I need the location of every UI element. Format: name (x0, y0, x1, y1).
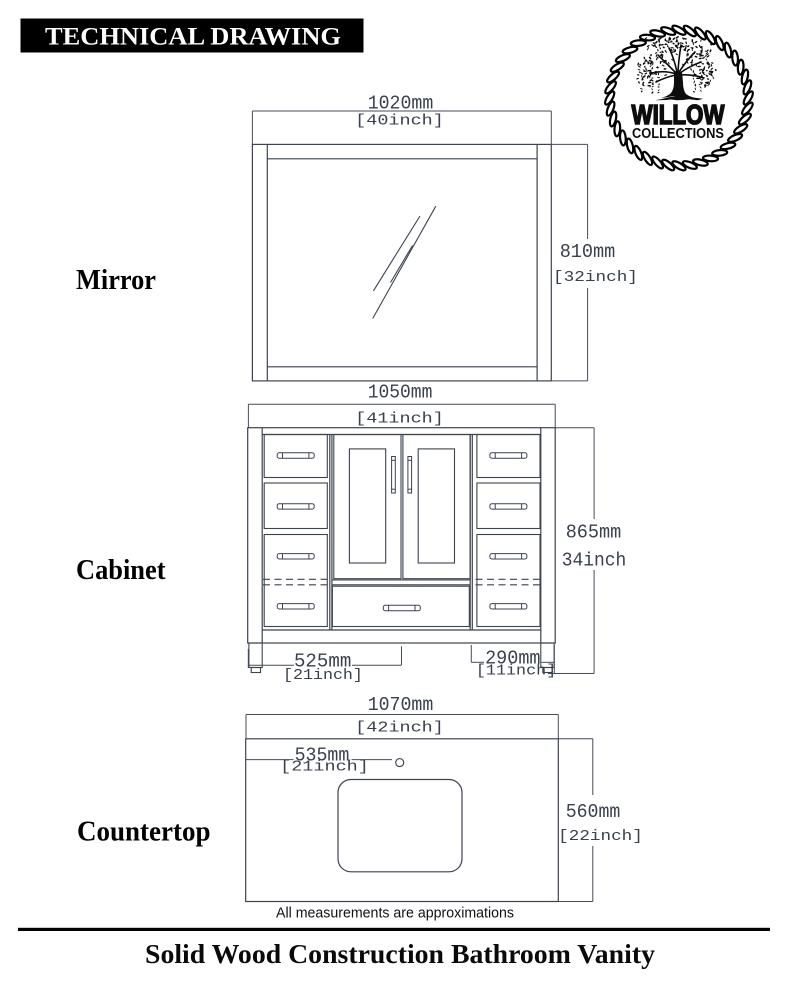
svg-text:1050mm: 1050mm (368, 381, 433, 403)
svg-text:[42inch]: [42inch] (355, 720, 444, 737)
svg-text:[41inch]: [41inch] (355, 410, 444, 427)
svg-text:TECHNICAL DRAWING: TECHNICAL DRAWING (45, 22, 341, 51)
svg-text:Cabinet: Cabinet (76, 554, 166, 586)
svg-text:1070mm: 1070mm (368, 694, 434, 716)
svg-text:[21inch]: [21inch] (280, 759, 369, 776)
svg-text:Countertop: Countertop (77, 816, 211, 848)
svg-text:[22inch]: [22inch] (558, 828, 643, 845)
svg-text:Solid Wood Construction Bathro: Solid Wood Construction Bathroom Vanity (145, 939, 656, 969)
svg-text:[32inch]: [32inch] (553, 269, 638, 286)
svg-text:COLLECTIONS: COLLECTIONS (632, 126, 724, 142)
svg-text:1020mm: 1020mm (368, 93, 434, 115)
svg-text:34inch: 34inch (562, 550, 627, 572)
svg-text:560mm: 560mm (566, 801, 621, 823)
svg-text:[11inch]: [11inch] (476, 662, 556, 679)
svg-text:[40inch]: [40inch] (355, 112, 444, 129)
svg-text:[21inch]: [21inch] (283, 667, 363, 684)
svg-text:865mm: 865mm (566, 522, 622, 544)
svg-text:Mirror: Mirror (76, 264, 156, 296)
svg-text:All measurements are approxima: All measurements are approximations (276, 906, 514, 922)
svg-text:810mm: 810mm (560, 241, 616, 263)
